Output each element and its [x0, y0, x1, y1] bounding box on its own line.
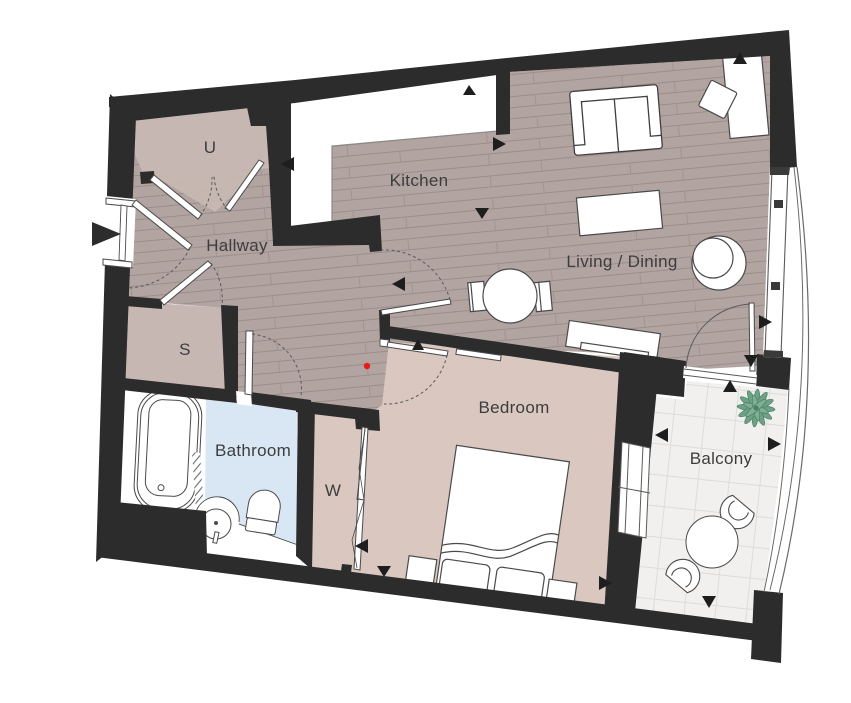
svg-text:Hallway: Hallway — [206, 236, 268, 255]
svg-text:W: W — [325, 481, 341, 500]
svg-text:U: U — [204, 138, 217, 157]
svg-text:Living / Dining: Living / Dining — [566, 252, 677, 271]
svg-text:Balcony: Balcony — [690, 449, 753, 468]
svg-text:Bedroom: Bedroom — [478, 398, 549, 417]
svg-text:S: S — [179, 340, 191, 359]
svg-text:Kitchen: Kitchen — [390, 171, 449, 190]
svg-text:Bathroom: Bathroom — [215, 441, 291, 460]
